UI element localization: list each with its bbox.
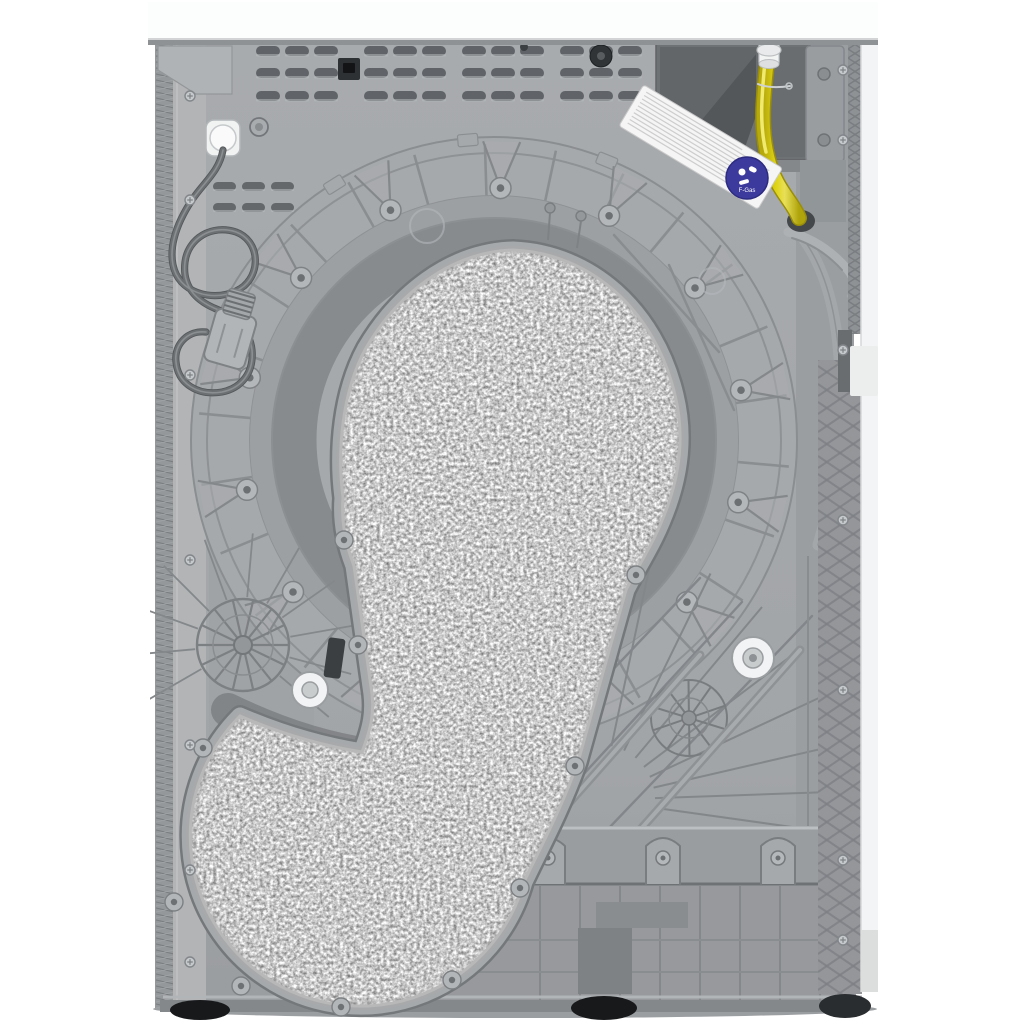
svg-text:F-Gas: F-Gas (739, 188, 756, 194)
